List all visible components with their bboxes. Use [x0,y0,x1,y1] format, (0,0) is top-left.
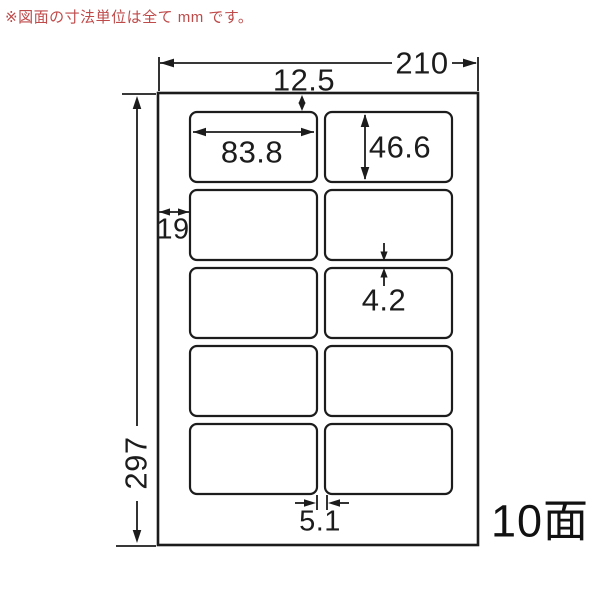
label-cell [190,268,317,338]
face-count-label: 10面 [491,499,589,544]
dim-label-col-gap: 5.1 [299,508,341,537]
dim-label-label-width: 83.8 [221,137,283,168]
label-cell [325,190,452,260]
label-cell [190,346,317,416]
dim-label-paper-height: 297 [121,436,152,489]
label-cell [190,190,317,260]
label-cell [325,346,452,416]
units-note: ※図面の寸法単位は全て mm です。 [5,6,253,27]
dim-label-top-margin: 12.5 [273,65,335,96]
dim-label-row-gap: 4.2 [362,285,407,316]
label-sheet-dimension-diagram: ※図面の寸法単位は全て mm です。 210 12.5 83.8 46.6 19… [0,0,600,600]
dim-label-label-height: 46.6 [369,132,431,163]
label-cell [325,424,452,494]
dim-label-left-margin: 19 [156,216,189,245]
label-cell [190,424,317,494]
dim-label-paper-width: 210 [395,48,448,79]
